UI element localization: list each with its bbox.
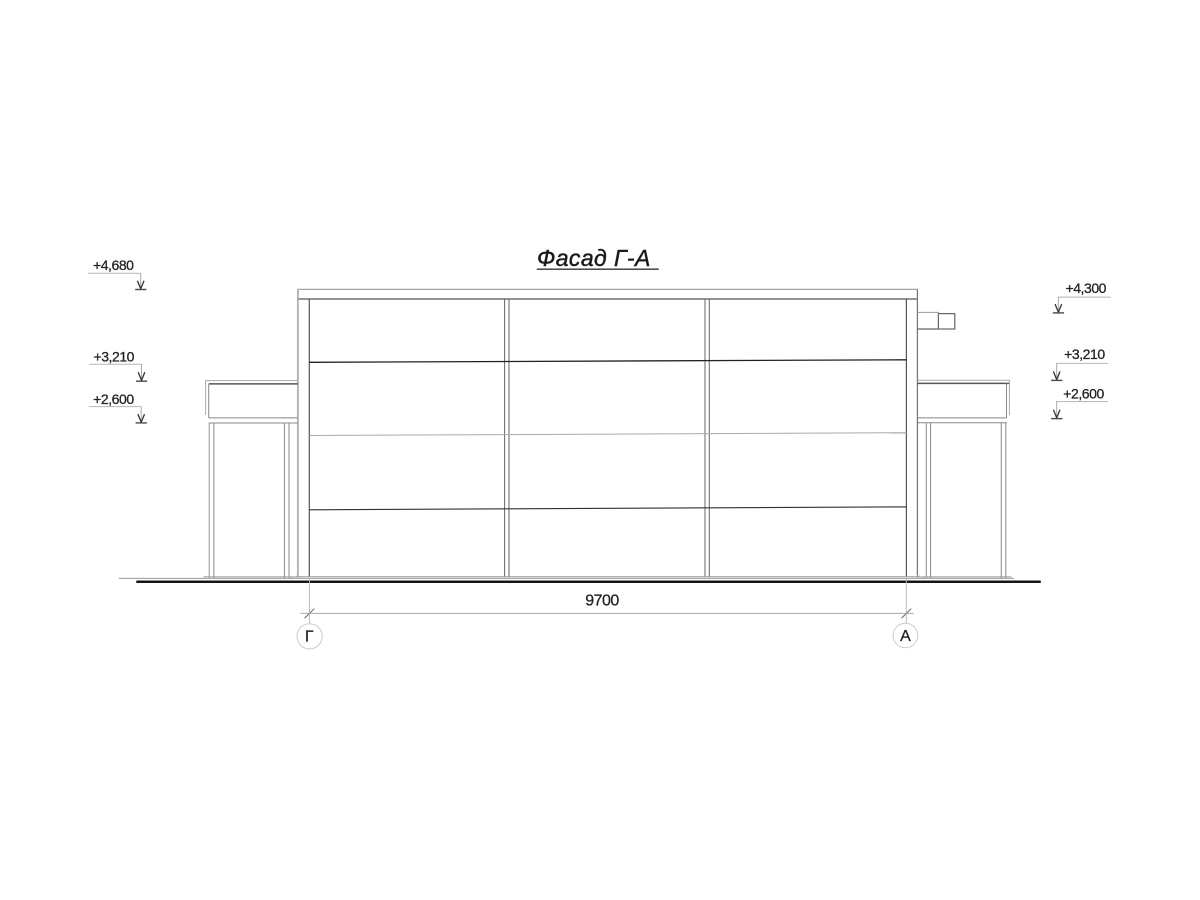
svg-text:Г: Г	[305, 628, 314, 645]
svg-text:+3,210: +3,210	[1064, 346, 1105, 362]
svg-text:Фасад Г-А: Фасад Г-А	[537, 245, 651, 271]
svg-text:9700: 9700	[585, 592, 619, 609]
svg-text:+3,210: +3,210	[93, 348, 134, 364]
svg-text:+4,680: +4,680	[93, 257, 134, 273]
svg-text:+2,600: +2,600	[93, 391, 134, 407]
svg-text:+4,300: +4,300	[1065, 280, 1106, 296]
svg-text:А: А	[900, 628, 911, 645]
svg-text:+2,600: +2,600	[1063, 385, 1104, 401]
